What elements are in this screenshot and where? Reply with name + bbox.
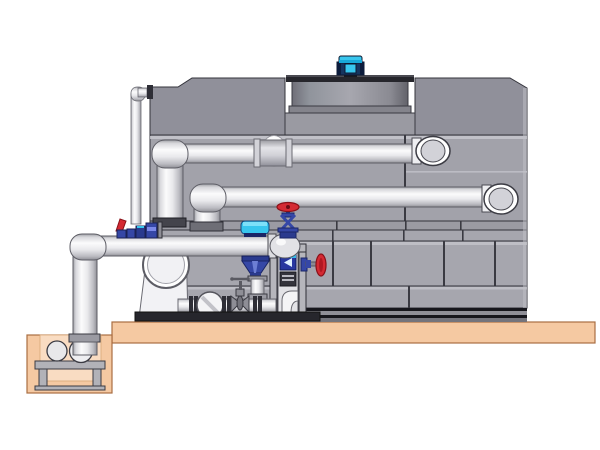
tower-right-edge xyxy=(523,88,527,308)
makeup-pipe-run xyxy=(131,94,141,224)
blue-pump-band xyxy=(147,227,156,231)
fan-motor-window xyxy=(345,64,356,73)
makeup-pipe-stub xyxy=(138,88,147,97)
dome-highlight xyxy=(276,239,286,246)
panel-divider xyxy=(494,241,496,286)
assembly-flange xyxy=(158,222,162,238)
fan-motor xyxy=(337,56,364,77)
supply-end-dome xyxy=(421,140,445,162)
skid-base xyxy=(135,312,320,321)
panel-divider xyxy=(460,221,462,230)
pump-stand-plate xyxy=(35,361,105,369)
fan-shroud xyxy=(286,75,414,113)
lever-valve-body xyxy=(117,230,126,238)
globe-valve-flange xyxy=(278,228,298,232)
fan-motor-side xyxy=(360,62,364,75)
handle-tip xyxy=(230,277,234,281)
handle-tip xyxy=(246,277,250,281)
sump-riser-elbow xyxy=(73,342,97,355)
panel-divider xyxy=(403,230,405,241)
side-valve-coupler xyxy=(306,260,311,268)
sump-riser-flange xyxy=(69,334,100,342)
pump-stand-rail xyxy=(35,386,105,390)
makeup-pipe-flange xyxy=(147,85,153,99)
diagram-svg xyxy=(0,0,600,450)
header-pipe-elbow xyxy=(70,234,106,260)
fan-shroud-lip xyxy=(289,106,411,113)
fan-deck-recess xyxy=(285,113,415,135)
fan-motor-cap-shade xyxy=(339,60,362,63)
ground xyxy=(27,322,595,393)
pump-stand-leg xyxy=(39,369,47,386)
gate-valve-stem xyxy=(239,281,242,290)
blue-valve-flange xyxy=(127,229,135,238)
sump-pump-body xyxy=(47,341,67,361)
return-riser-flange xyxy=(190,222,223,231)
blue-valve-accent xyxy=(137,226,144,228)
coupling-ridge xyxy=(286,139,292,167)
return-pipe-run xyxy=(204,187,484,207)
side-handwheel-inner xyxy=(319,258,323,272)
header-pipe-run xyxy=(92,236,275,256)
concrete-platform xyxy=(112,322,595,343)
panel-highlight xyxy=(150,287,527,290)
panel-divider xyxy=(405,221,407,230)
coupling-ridge xyxy=(254,139,260,167)
actuator-highlight xyxy=(243,222,267,226)
junction-box-slit xyxy=(282,275,294,277)
panel-divider xyxy=(370,241,372,286)
gate-valve-hub xyxy=(237,296,243,310)
control-valve-flange xyxy=(242,256,269,261)
cooling-tower-diagram xyxy=(0,0,600,450)
panel-divider xyxy=(332,241,334,286)
panel-divider xyxy=(408,286,410,308)
actuator-base xyxy=(244,233,266,237)
junction-box-slit xyxy=(282,279,294,281)
sump-riser-run xyxy=(73,252,97,336)
return-end-dome xyxy=(489,188,513,210)
panel-divider xyxy=(443,241,445,286)
supply-pipe-elbow xyxy=(152,140,188,168)
fan-motor-side xyxy=(337,62,341,75)
handwheel-hub xyxy=(286,205,290,209)
pump-stand-leg xyxy=(93,369,101,386)
gate-valve-bonnet xyxy=(236,289,244,296)
panel-divider xyxy=(336,221,338,230)
tower-top-left-panel xyxy=(150,78,285,135)
return-pipe-elbow xyxy=(190,184,226,212)
globe-valve-body xyxy=(280,232,296,238)
lever-valve-red xyxy=(116,219,126,238)
sump-riser-pipe xyxy=(69,252,100,355)
panel-divider xyxy=(462,230,464,241)
fan-shroud-drum xyxy=(292,81,408,108)
tower-top-right-panel xyxy=(415,78,527,135)
panel-divider xyxy=(332,230,334,241)
panel-seam xyxy=(405,171,527,173)
